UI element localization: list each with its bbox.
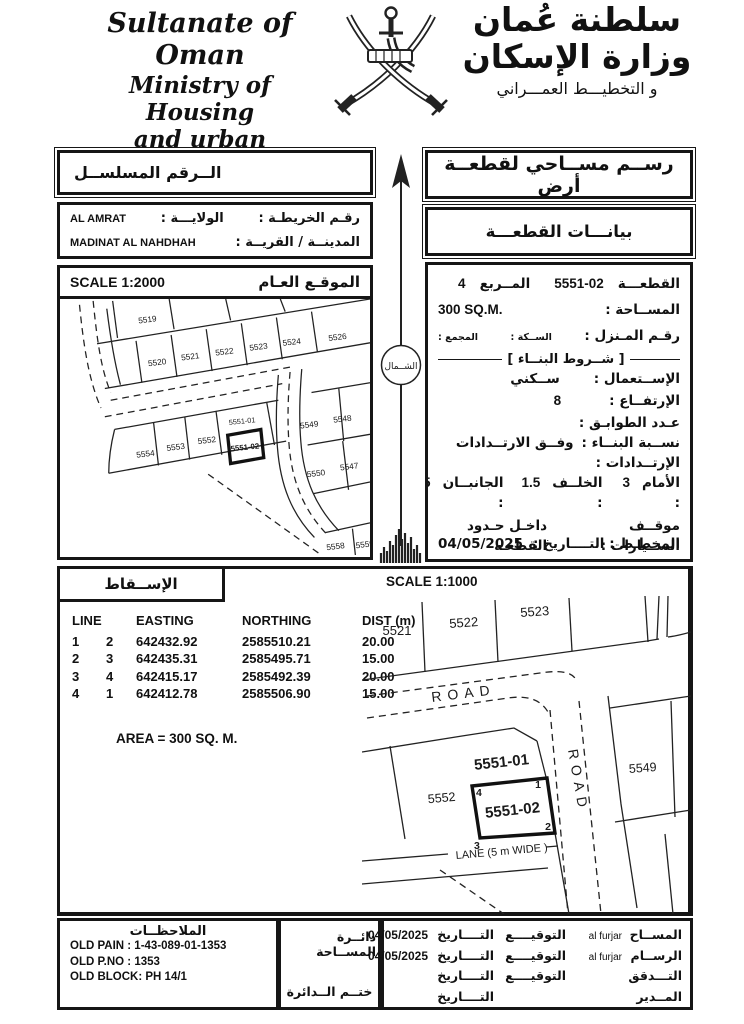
table-cell: 2585492.39: [242, 669, 354, 684]
front-setback-label: الأمام :: [642, 473, 680, 513]
plot-data-title: بيانـــات القطعـــة: [486, 222, 633, 241]
other-conditions-label: شروط أخرى: [581, 560, 680, 562]
corner-number: 4: [476, 787, 482, 799]
back-setback-value: 1.5: [521, 473, 540, 493]
role-label: المــدير: [622, 989, 682, 1004]
plot-number-row: القطعـــة 5551-02 المــربع 4: [438, 274, 680, 294]
site-map-box: SCALE 1:2000 الموقـع العـام: [57, 265, 373, 560]
date-value: 04/05/2025: [368, 928, 428, 942]
complex-label: المجمع :: [438, 328, 478, 348]
note-line: OLD BLOCK: PH 14/1: [70, 970, 268, 986]
road-lines: [367, 672, 637, 914]
subject-plot-label: 5551-02: [484, 799, 541, 822]
role-label: التـــدقق: [622, 968, 682, 983]
plot-label: 5554: [136, 449, 156, 460]
table-cell: 4: [72, 686, 98, 701]
back-setback-label: الخلــف :: [552, 473, 602, 513]
height-label: الإرتفــاع :: [609, 391, 680, 411]
house-number-row: رقـم المـنزل : الســكة : المجمع :: [438, 326, 680, 348]
document-title-box: رســم مســاحي لقطعــة أرض: [425, 150, 693, 199]
north-arrow-icon: [382, 154, 421, 546]
role-label: الرســام: [622, 948, 682, 963]
plan-date-value: 04/05/2025: [438, 536, 523, 552]
signature-table: المســاح al furjar التوقيــــع التــــار…: [392, 927, 682, 1009]
plot-label: 5522: [215, 346, 235, 357]
north-label: الشــمال: [384, 362, 417, 372]
projection-title: الإســقاط: [104, 575, 177, 593]
plot-label: 5520: [147, 357, 167, 368]
sides-setback-value: 1.5: [425, 473, 431, 493]
divider-line: [438, 359, 502, 360]
subject-plot-label: 5551-02: [230, 441, 260, 453]
building-ratio-value: وفــق الارتــدادات: [456, 433, 574, 453]
use-value: ســكني: [510, 369, 560, 389]
note-line: OLD P.NO : 1353: [70, 955, 268, 971]
role-label: المســاح: [622, 927, 682, 942]
notes-box: الملاحظــات OLD PAIN : 1-43-089-01-1353 …: [57, 918, 279, 1010]
table-cell: 642435.31: [136, 651, 234, 666]
building-ratio-label: نســبة البنــاء :: [582, 433, 680, 453]
planner-label: المخطـط :: [609, 536, 680, 552]
plot-label: 5521: [383, 623, 412, 638]
area-value: 300 SQ.M.: [438, 300, 503, 320]
col-header-easting: EASTING: [136, 613, 234, 628]
corner-number: 1: [535, 779, 541, 791]
table-cell: 642412.78: [136, 686, 234, 701]
ratio-row: نســبة البنــاء : وفــق الارتــدادات: [438, 433, 680, 453]
corner-number: 2: [545, 821, 551, 833]
survey-department-label: دائــرة المســاحة: [283, 929, 376, 959]
setback-values-row: الأمام : 3 الخلــف : 1.5 الجانبــان : 1.…: [438, 473, 680, 513]
plot-label: 5519: [138, 314, 158, 325]
road-label-vertical: ROAD: [565, 748, 592, 814]
map-number-label: رقـم الخريطـة :: [258, 211, 360, 226]
detail-map: 5521 5522 5523 5552 5551-01 5551-02 5549…: [362, 588, 691, 914]
planner-row: المخطـط : التــــاريخ : 04/05/2025: [438, 536, 680, 552]
plot-label: 5558: [326, 541, 346, 552]
area-row: المســاحة : 300 SQ.M.: [438, 300, 680, 320]
plot-label: 5549: [628, 760, 657, 776]
date-label: التــــاريخ: [428, 948, 494, 963]
plot-label: 5550: [306, 468, 326, 479]
city-village-label: المدينــة / القريــة :: [236, 235, 360, 250]
serial-number-box: الــرقم المسلســل: [57, 150, 373, 195]
note-line: OLD PAIN : 1-43-089-01-1353: [70, 939, 268, 955]
front-setback-value: 3: [622, 473, 630, 493]
square-value: 4: [458, 274, 466, 294]
plot-label: 5521: [181, 351, 201, 362]
table-cell: 2585495.71: [242, 651, 354, 666]
building-conditions-divider: [ شــروط البنــاء ]: [438, 352, 680, 367]
location-box: رقـم الخريطـة : الولايـــة : AL AMRAT ال…: [57, 202, 373, 259]
other-conditions-row: شروط أخرى: [438, 560, 680, 562]
projection-section: الإســقاط SCALE 1:1000 LINE EASTING NORT…: [57, 566, 693, 916]
plot-label: 5523: [249, 342, 269, 353]
plot-label: 5551-01: [228, 415, 256, 427]
street-label: الســكة :: [511, 328, 552, 348]
plot-label: 5523: [520, 603, 550, 620]
plot-labels: 5519 5520 5521 5522 5523 5524 5526 5554 …: [136, 314, 370, 552]
city-village-value: MADINAT AL NAHDHAH: [70, 237, 196, 249]
plot-data-title-box: بيانـــات القطعـــة: [425, 207, 693, 256]
plan-date-label: التــــاريخ :: [533, 536, 604, 552]
plot-label: 5552: [427, 790, 456, 806]
setbacks-row: الإرتــدادات :: [438, 453, 680, 473]
plot-label: 5548: [333, 414, 353, 425]
plot-label: 5552: [197, 435, 217, 446]
sides-setback-label: الجانبــان :: [443, 473, 504, 513]
header-arabic-title: سلطنة عُمان وزارة الإسكان و التخطيـــط ا…: [452, 2, 702, 98]
table-cell: 642432.92: [136, 634, 234, 649]
site-map-scale: SCALE 1:2000: [70, 274, 165, 290]
table-cell: 1: [72, 634, 98, 649]
overview-map: 5519 5520 5521 5522 5523 5524 5526 5554 …: [60, 299, 370, 555]
setbacks-label: الإرتــدادات :: [596, 453, 680, 473]
house-number-label: رقـم المـنزل :: [584, 326, 680, 346]
table-cell: 2585510.21: [242, 634, 354, 649]
plot-label: 5549: [300, 419, 320, 430]
survey-document-page: Sultanate of Oman Ministry of Housing an…: [0, 0, 744, 1024]
wilaya-value: AL AMRAT: [70, 213, 126, 225]
signatures-box: المســاح al furjar التوقيــــع التــــار…: [381, 918, 693, 1010]
date-label: التــــاريخ: [428, 927, 494, 942]
table-cell: 3: [72, 669, 98, 684]
table-cell: 642415.17: [136, 669, 234, 684]
plot-label: 5522: [449, 614, 479, 631]
ministry-name-en: Sultanate of Oman: [82, 8, 318, 72]
plot-label: 5553: [166, 442, 186, 453]
col-header-line: LINE: [72, 613, 128, 628]
date-label: التــــاريخ: [428, 989, 494, 1004]
serial-number-title: الــرقم المسلســل: [74, 163, 222, 182]
area-note: AREA = 300 SQ. M.: [116, 731, 237, 746]
height-row: الإرتفــاع : 8: [438, 391, 680, 411]
date-value: 04/05/2025: [368, 949, 428, 963]
table-cell: 4: [106, 669, 128, 684]
use-label: الإســتعمال :: [594, 369, 680, 389]
building-conditions-title: [ شــروط البنــاء ]: [502, 352, 629, 367]
divider-line: [630, 359, 680, 360]
floors-label: عـدد الطوابـق :: [579, 413, 680, 433]
plot-label: 5547: [340, 461, 360, 472]
plot-label: 5526: [328, 332, 348, 343]
table-cell: 2585506.90: [242, 686, 354, 701]
corner-number: 3: [474, 840, 480, 852]
parent-plot-label: 5551-01: [473, 751, 530, 774]
survey-department-box: دائــرة المســاحة ختــم الــدائرة: [279, 918, 381, 1010]
square-label: المــربع: [480, 274, 531, 294]
plot-data-box: القطعـــة 5551-02 المــربع 4 المســاحة :…: [425, 262, 693, 562]
plot-label: 5559: [355, 539, 370, 550]
detail-map-scale: SCALE 1:1000: [386, 574, 478, 589]
plot-label: 5524: [282, 337, 302, 348]
oman-national-emblem-icon: [328, 0, 454, 116]
use-row: الإســتعمال : ســكني: [438, 369, 680, 389]
signature-label: التوقيــــع: [494, 968, 566, 983]
north-indicator: الشــمال: [378, 150, 424, 565]
table-cell: 1: [106, 686, 128, 701]
department-stamp-label: ختــم الــدائرة: [287, 984, 373, 999]
site-map-title: الموقـع العـام: [258, 273, 360, 291]
table-cell: 3: [106, 651, 128, 666]
signer-name: al furjar: [566, 931, 622, 942]
area-label: المســاحة :: [605, 300, 680, 320]
signature-label: التوقيــــع: [494, 948, 566, 963]
floors-row: عـدد الطوابـق :: [438, 413, 680, 433]
ministry-name-ar: سلطنة عُمان: [452, 2, 702, 39]
plot-number-label: القطعـــة: [618, 274, 680, 294]
wilaya-label: الولايـــة :: [161, 211, 224, 226]
height-value: 8: [554, 391, 562, 411]
document-title: رســم مســاحي لقطعــة أرض: [428, 153, 690, 197]
notes-title: الملاحظــات: [68, 924, 268, 939]
date-label: التــــاريخ: [428, 968, 494, 983]
table-cell: 2: [106, 634, 128, 649]
col-header-northing: NORTHING: [242, 613, 354, 628]
lane-label: LANE (5 m WIDE ): [455, 842, 548, 862]
table-cell: 2: [72, 651, 98, 666]
signature-label: التوقيــــع: [494, 927, 566, 942]
projection-title-box: الإســقاط: [57, 566, 225, 602]
signer-name: al furjar: [566, 952, 622, 963]
plot-number-value: 5551-02: [554, 274, 604, 294]
